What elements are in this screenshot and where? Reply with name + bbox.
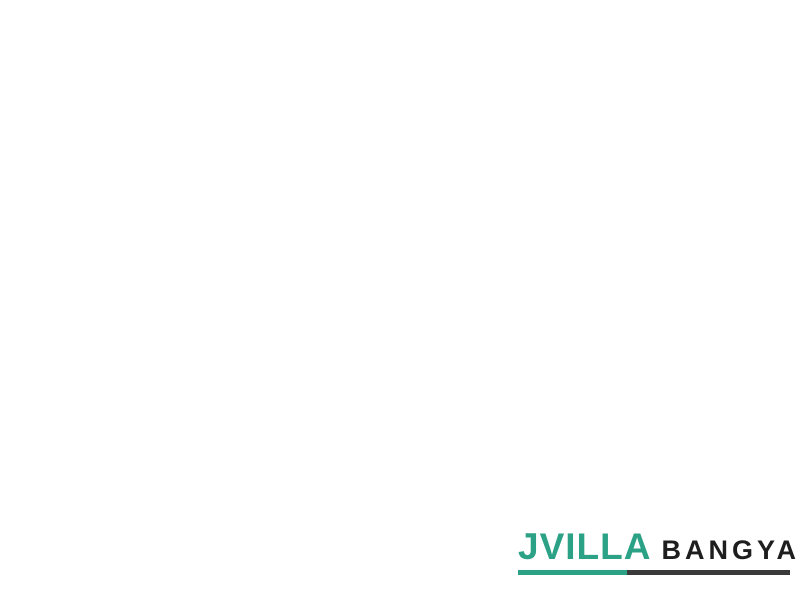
- logo-suffix-text: BANGYAI: [661, 535, 800, 566]
- logo: JVILLA BANGYAI: [518, 526, 798, 575]
- screenshot-root: JVILLA BANGYAI: [0, 0, 800, 600]
- master-plan: [0, 0, 800, 600]
- logo-brand-text: JVILLA: [518, 526, 651, 568]
- logo-text-row: JVILLA BANGYAI: [518, 526, 798, 568]
- site-plan-svg: [0, 0, 800, 600]
- logo-underline: [518, 570, 790, 575]
